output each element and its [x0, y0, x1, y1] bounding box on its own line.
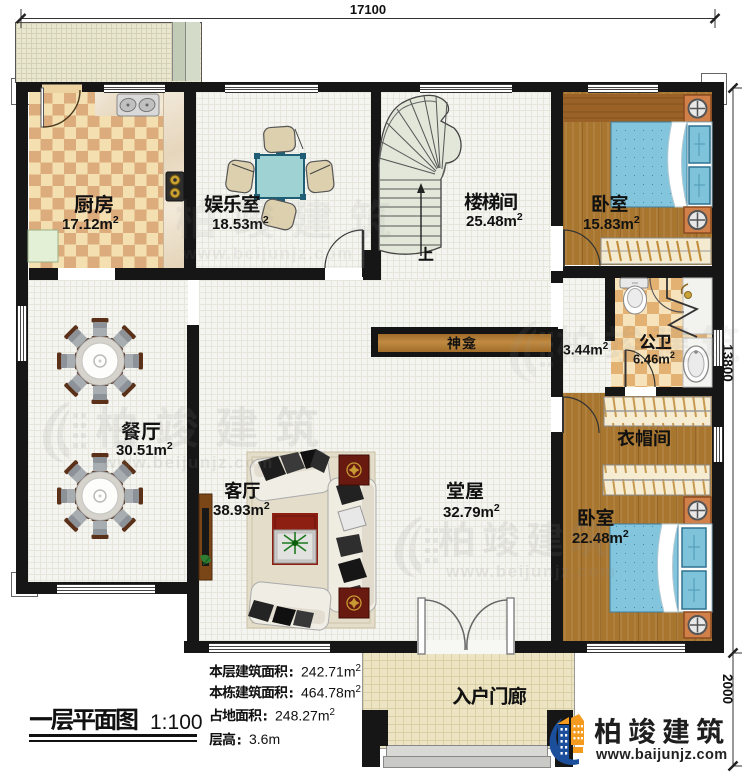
svg-text:2000: 2000 [720, 674, 735, 704]
svg-text:17100: 17100 [350, 2, 386, 17]
